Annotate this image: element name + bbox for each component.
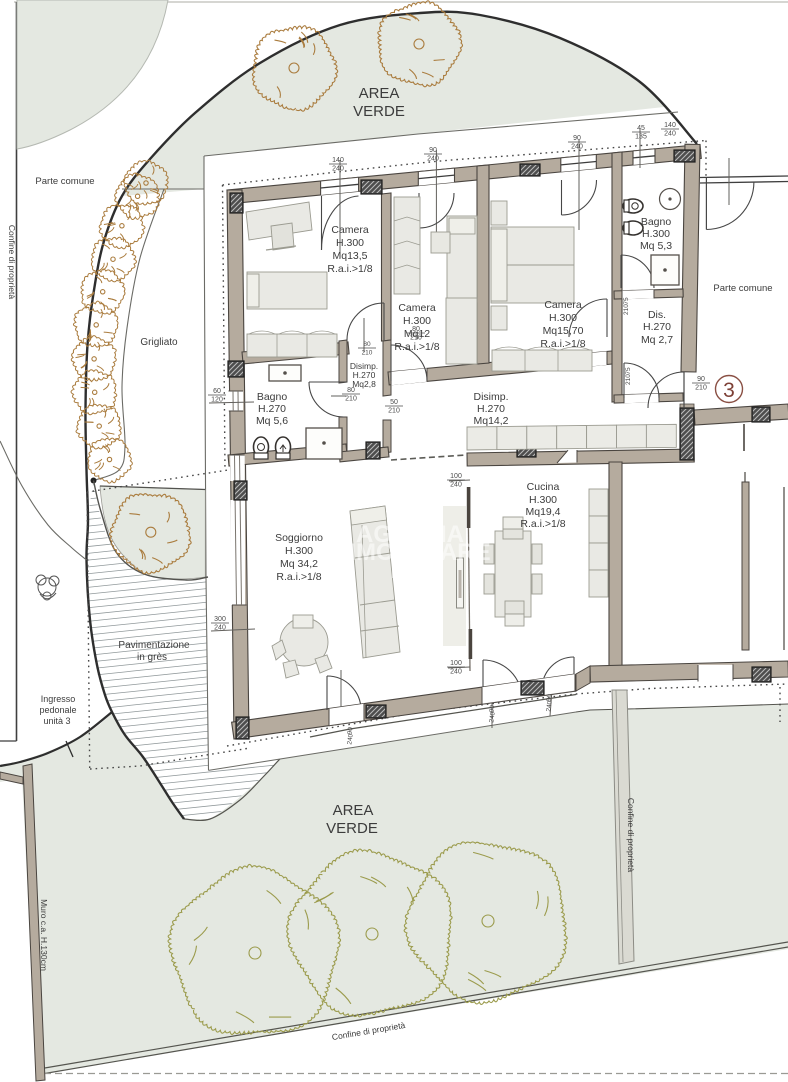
svg-text:Dis.: Dis.: [648, 309, 666, 321]
svg-text:AREA: AREA: [333, 802, 374, 819]
svg-text:VERDE: VERDE: [353, 103, 405, 120]
svg-text:100: 100: [450, 660, 462, 667]
svg-text:210: 210: [623, 304, 630, 315]
svg-text:Confine di proprietà: Confine di proprietà: [7, 225, 17, 299]
svg-text:240: 240: [214, 625, 226, 632]
svg-text:Muro c.a. H.130cm: Muro c.a. H.130cm: [39, 899, 49, 971]
svg-text:240: 240: [450, 669, 462, 676]
svg-text:R.a.i.>1/8: R.a.i.>1/8: [327, 263, 372, 275]
svg-text:Camera: Camera: [544, 299, 582, 311]
svg-text:R.a.i.>1/8: R.a.i.>1/8: [394, 341, 439, 353]
svg-text:240: 240: [332, 166, 344, 173]
svg-text:R.a.i.>1/8: R.a.i.>1/8: [540, 338, 585, 350]
svg-text:H.300: H.300: [642, 228, 670, 240]
svg-text:Mq15,70: Mq15,70: [543, 325, 584, 337]
svg-text:140: 140: [664, 122, 676, 129]
svg-text:R.a.i.>1/8: R.a.i.>1/8: [520, 518, 565, 530]
svg-text:90: 90: [697, 376, 705, 383]
svg-text:Camera: Camera: [331, 224, 369, 236]
svg-text:AREA: AREA: [359, 85, 400, 102]
svg-text:210: 210: [388, 408, 400, 415]
svg-text:Mq 34,2: Mq 34,2: [280, 558, 318, 570]
svg-text:210: 210: [695, 385, 707, 392]
svg-text:Ingresso: Ingresso: [41, 694, 76, 704]
svg-text:60: 60: [213, 388, 221, 395]
svg-text:Mq 2,7: Mq 2,7: [641, 334, 673, 346]
svg-text:240: 240: [427, 156, 439, 163]
svg-text:90: 90: [573, 135, 581, 142]
svg-text:Grigliato: Grigliato: [140, 337, 178, 348]
svg-text:75: 75: [623, 297, 630, 305]
svg-text:H.270: H.270: [477, 403, 505, 415]
svg-text:120: 120: [211, 397, 223, 404]
svg-text:Parte comune: Parte comune: [713, 283, 772, 294]
svg-text:240: 240: [664, 131, 676, 138]
svg-text:135: 135: [635, 134, 647, 141]
svg-text:210: 210: [625, 374, 632, 385]
svg-text:210: 210: [362, 350, 373, 357]
svg-text:Pavimentazione: Pavimentazione: [118, 640, 190, 651]
svg-text:Mq 5,6: Mq 5,6: [256, 415, 288, 427]
svg-text:80: 80: [363, 341, 371, 348]
svg-text:45: 45: [637, 125, 645, 132]
svg-text:in grès: in grès: [137, 652, 167, 663]
svg-text:unità 3: unità 3: [43, 716, 70, 726]
svg-text:Cucina: Cucina: [527, 481, 560, 493]
svg-text:H.300: H.300: [285, 545, 313, 557]
svg-text:50: 50: [390, 399, 398, 406]
svg-text:Mq14,2: Mq14,2: [473, 415, 508, 427]
svg-text:Mq2,8: Mq2,8: [352, 379, 376, 389]
svg-text:Bagno: Bagno: [641, 216, 672, 228]
svg-text:Confine di proprietà: Confine di proprietà: [626, 798, 636, 872]
svg-text:240: 240: [571, 144, 583, 151]
svg-text:Soggiorno: Soggiorno: [275, 532, 323, 544]
svg-text:80: 80: [347, 387, 355, 394]
svg-text:Bagno: Bagno: [257, 391, 288, 403]
svg-text:Camera: Camera: [398, 302, 436, 314]
svg-text:140: 140: [332, 157, 344, 164]
svg-text:Mq19,4: Mq19,4: [525, 506, 560, 518]
svg-text:pedonale: pedonale: [39, 705, 76, 715]
svg-text:H.300: H.300: [549, 312, 577, 324]
svg-text:90: 90: [429, 147, 437, 154]
svg-text:Parte comune: Parte comune: [35, 176, 94, 187]
svg-text:H.300: H.300: [529, 494, 557, 506]
svg-text:3: 3: [723, 379, 735, 402]
svg-text:Mq 5,3: Mq 5,3: [640, 240, 672, 252]
svg-text:75: 75: [625, 367, 632, 375]
svg-text:VERDE: VERDE: [326, 820, 378, 837]
svg-text:H.270: H.270: [643, 321, 671, 333]
svg-text:Mq13,5: Mq13,5: [332, 250, 367, 262]
svg-text:H.270: H.270: [258, 403, 286, 415]
svg-text:300: 300: [214, 616, 226, 623]
svg-text:R.a.i.>1/8: R.a.i.>1/8: [276, 571, 321, 583]
svg-text:M D: M D: [391, 557, 438, 584]
svg-text:Disimp.: Disimp.: [473, 391, 508, 403]
svg-text:100: 100: [450, 473, 462, 480]
svg-text:240: 240: [450, 482, 462, 489]
svg-text:80: 80: [412, 326, 420, 333]
svg-text:210: 210: [410, 335, 422, 342]
svg-text:H.300: H.300: [336, 237, 364, 249]
svg-text:210: 210: [345, 396, 357, 403]
